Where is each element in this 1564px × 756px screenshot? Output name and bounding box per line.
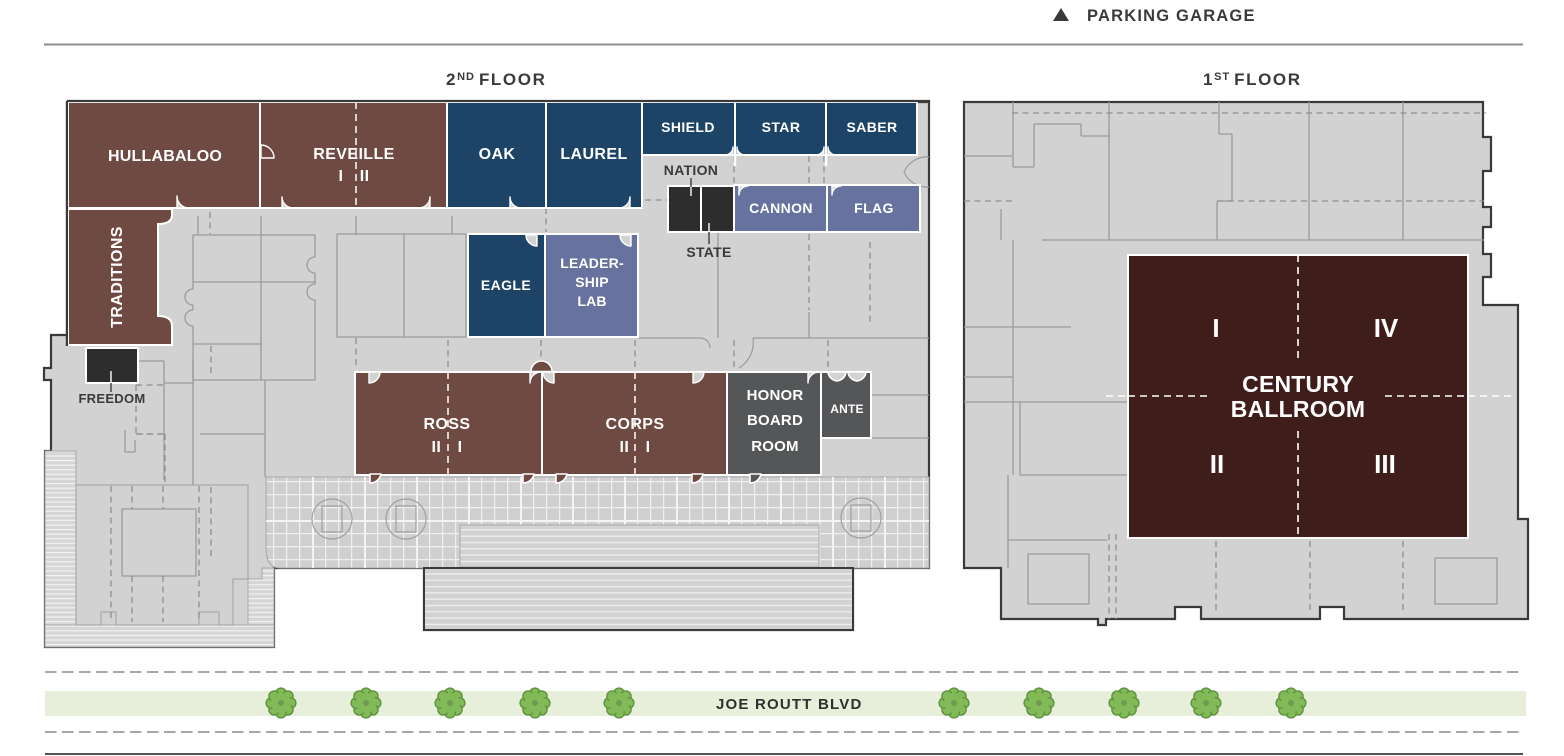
svg-text:BOARD: BOARD (747, 412, 803, 429)
svg-text:I II: I II (339, 168, 370, 185)
svg-text:JOE ROUTT BLVD: JOE ROUTT BLVD (716, 696, 863, 713)
svg-text:III: III (1374, 449, 1396, 479)
svg-text:HONOR: HONOR (747, 387, 804, 404)
svg-text:LEADER-: LEADER- (560, 255, 624, 271)
svg-text:ANTE: ANTE (830, 402, 863, 416)
svg-text:II: II (1210, 449, 1224, 479)
svg-text:IV: IV (1374, 313, 1399, 343)
svg-text:CANNON: CANNON (749, 200, 813, 216)
svg-text:SHIELD: SHIELD (661, 119, 715, 135)
svg-text:FREEDOM: FREEDOM (78, 391, 145, 406)
svg-text:I: I (1212, 313, 1219, 343)
svg-text:OAK: OAK (479, 146, 516, 163)
svg-text:BALLROOM: BALLROOM (1231, 396, 1365, 422)
svg-text:STAR: STAR (762, 119, 801, 135)
svg-text:LAB: LAB (577, 293, 606, 309)
svg-text:CENTURY: CENTURY (1242, 371, 1354, 397)
svg-text:SABER: SABER (846, 119, 897, 135)
svg-text:ROOM: ROOM (751, 438, 798, 455)
svg-text:FLAG: FLAG (854, 200, 894, 216)
svg-text:SHIP: SHIP (575, 274, 608, 290)
svg-text:CORPS: CORPS (606, 416, 665, 433)
svg-text:HULLABALOO: HULLABALOO (108, 148, 222, 165)
svg-text:NATION: NATION (664, 162, 718, 178)
svg-text:EAGLE: EAGLE (481, 277, 531, 293)
svg-text:PARKING GARAGE: PARKING GARAGE (1087, 7, 1256, 25)
svg-text:STATE: STATE (686, 244, 731, 260)
svg-text:LAUREL: LAUREL (560, 146, 627, 163)
svg-text:II I: II I (432, 439, 463, 456)
svg-text:TRADITIONS: TRADITIONS (109, 226, 126, 328)
svg-text:REVEILLE: REVEILLE (313, 146, 394, 163)
svg-text:II I: II I (620, 439, 651, 456)
svg-text:ROSS: ROSS (424, 416, 471, 433)
